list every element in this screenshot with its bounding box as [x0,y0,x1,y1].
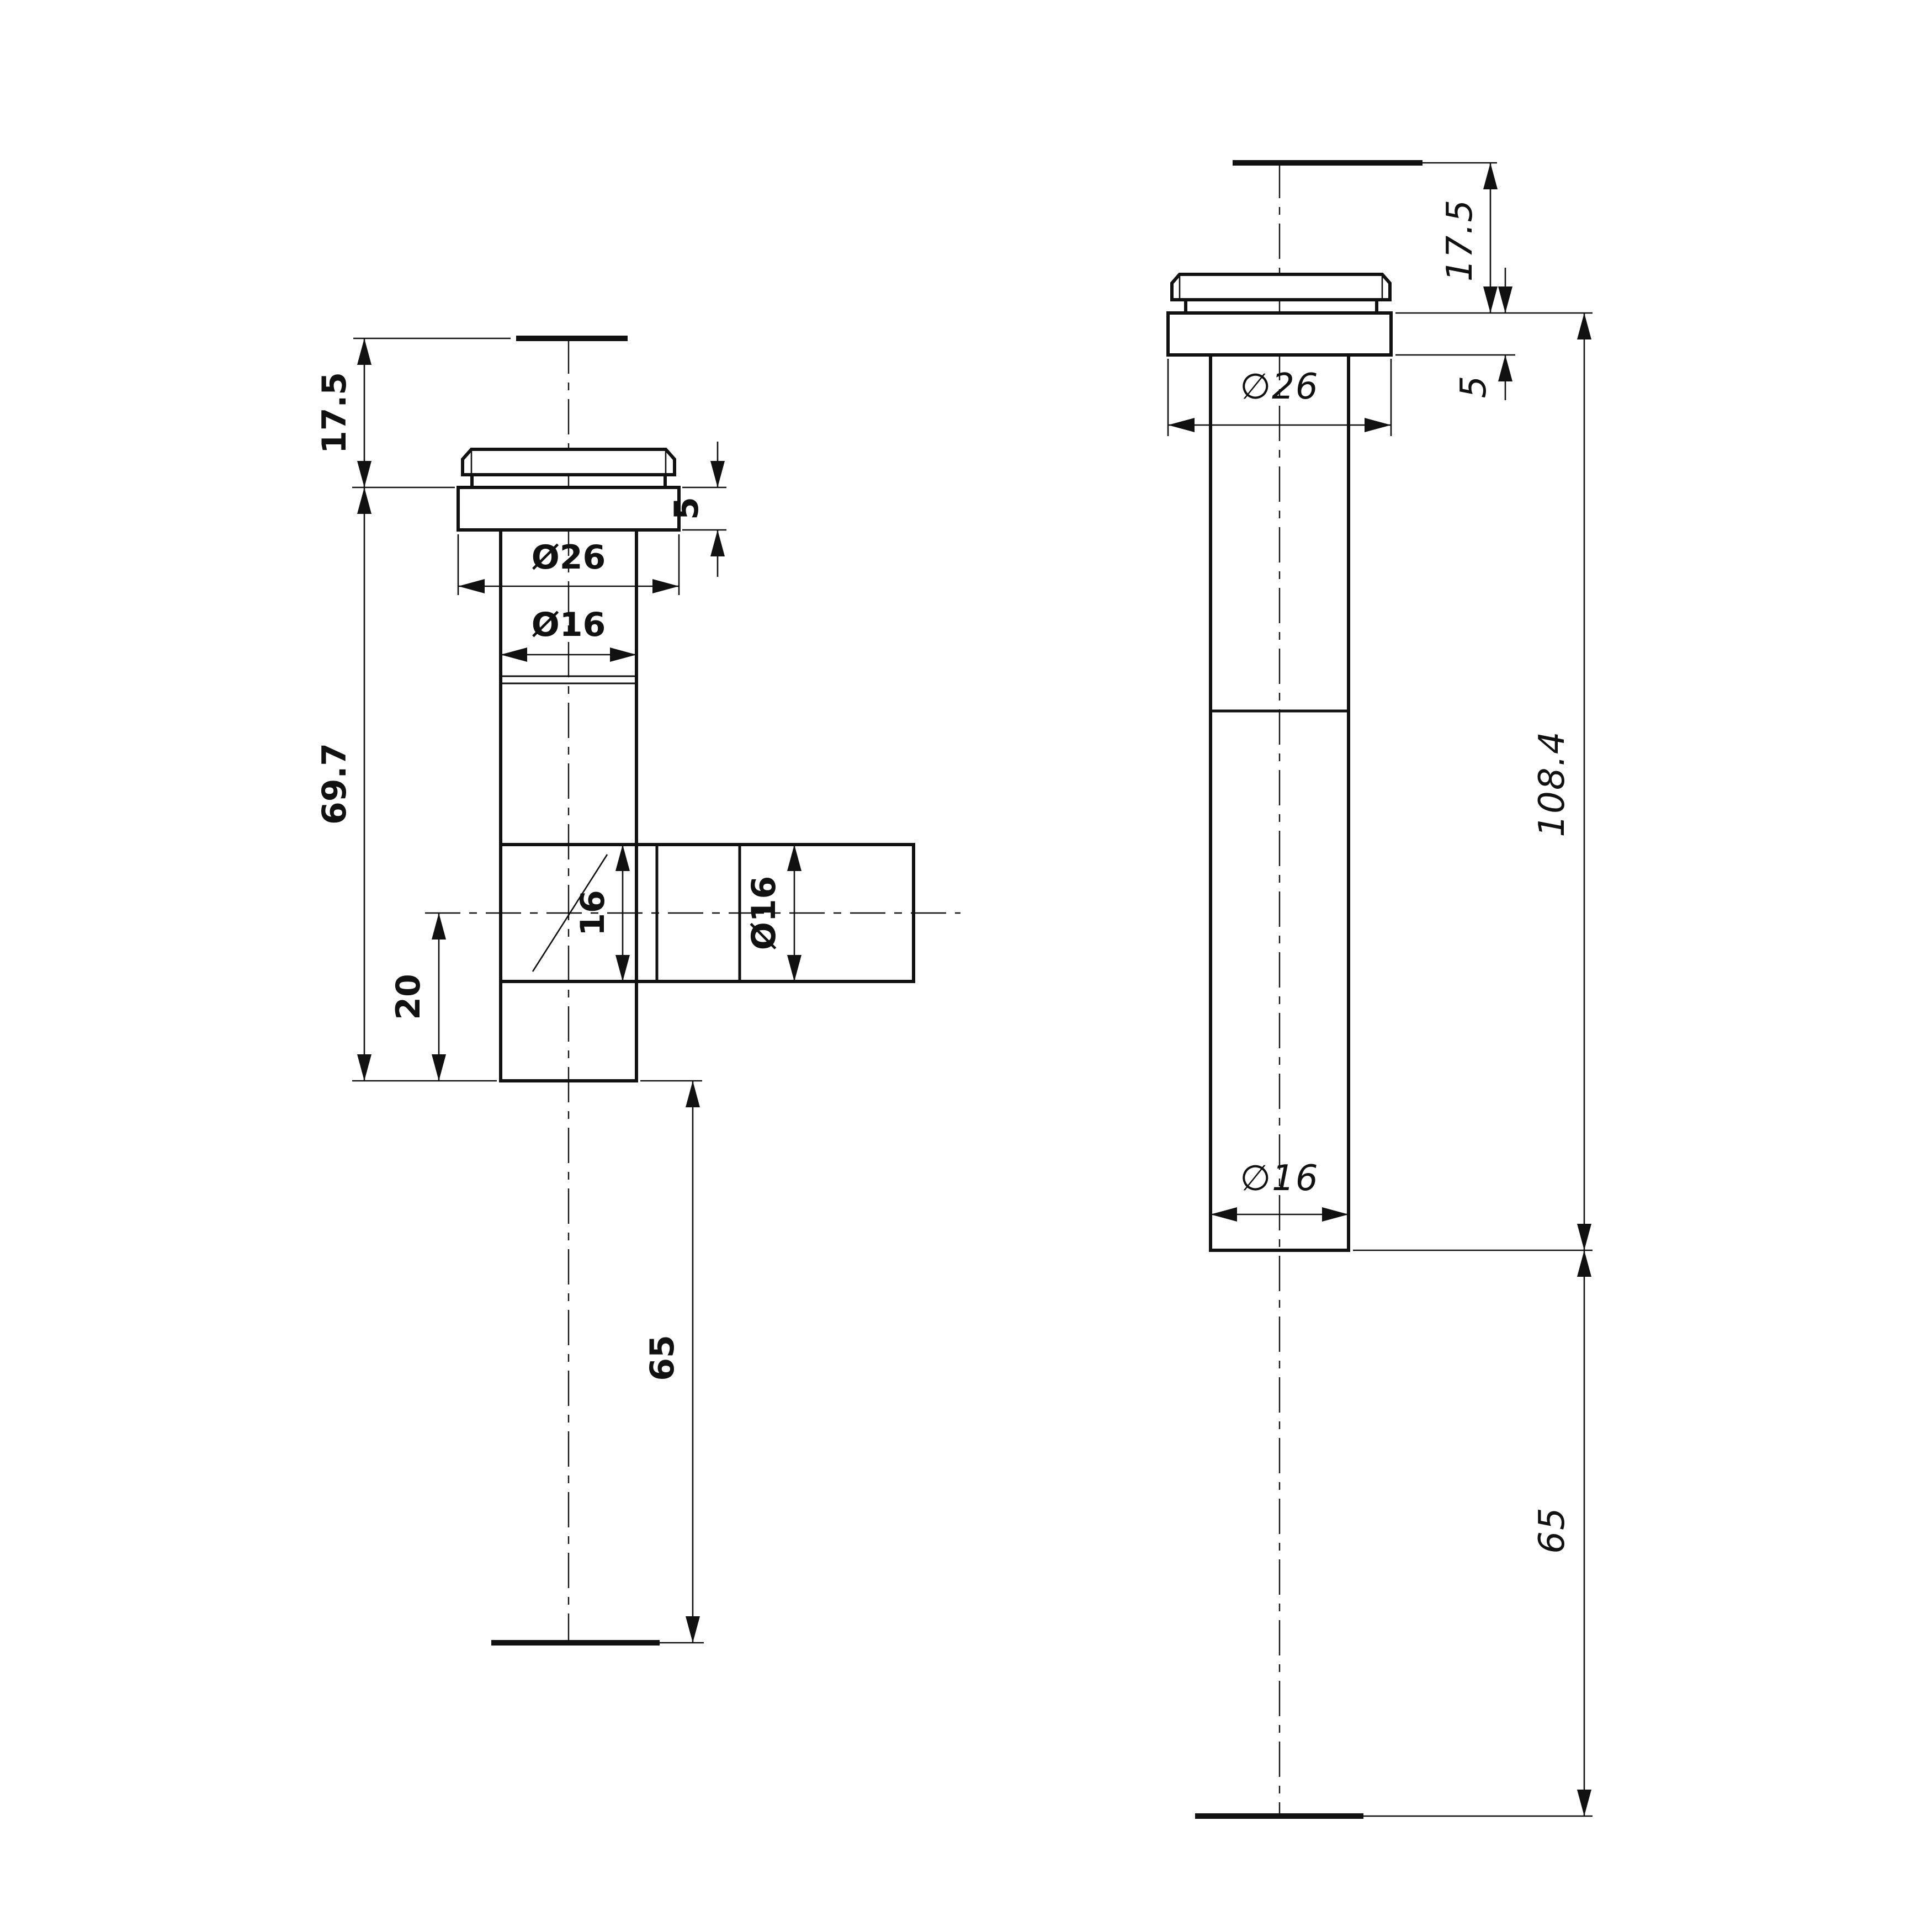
cap-outline [1172,274,1390,300]
technical-drawing: 17.5 69.7 5 Ø26 Ø16 16 [0,0,1932,1932]
front-dim-branch-dia-label: Ø16 [745,876,783,951]
side-dim-glass-gap-label: 65 [1532,1506,1573,1553]
front-dim-branch-bore-label: 16 [574,890,612,936]
arrowhead [357,461,371,487]
arrowhead [686,1081,700,1107]
front-dim-flange-height-label: 5 [667,497,706,520]
side-dim-cap-height-label: 17.5 [1440,199,1480,282]
arrowhead [1577,1790,1591,1816]
arrowhead [432,1054,446,1081]
arrowhead [787,955,802,981]
arrowhead [652,579,679,593]
arrowhead [1577,313,1591,339]
flange-outline [1168,313,1391,355]
front-dim-body-length-label: 69.7 [315,743,354,825]
front-dim-cap-height-label: 17.5 [315,372,354,454]
front-dim-glass-gap-label: 65 [643,1335,682,1381]
arrowhead [1483,286,1498,313]
front-dim-shaft-dia-label: Ø16 [532,606,606,644]
arrowhead [357,487,371,514]
front-dim-flange-dia-label: Ø26 [532,538,606,577]
arrowhead [1168,418,1195,432]
arrowhead [710,530,725,556]
arrowhead [686,1616,700,1643]
arrowhead [1498,355,1512,381]
arrowhead [615,955,630,981]
arrowhead [357,338,371,365]
arrowhead [458,579,485,593]
cap-outline [463,449,675,475]
arrowhead [357,1054,371,1081]
arrowhead [787,845,802,871]
flange-outline [458,487,679,530]
arrowhead [610,647,636,662]
arrowhead [501,647,527,662]
arrowhead [1322,1207,1349,1222]
side-dim-flange-dia-label: ∅26 [1240,367,1319,407]
arrowhead [615,845,630,871]
side-view: 17.5 5 ∅26 ∅16 108.4 65 [1168,163,1593,1816]
side-dim-overall-length-label: 108.4 [1532,730,1573,837]
arrowhead [710,461,725,487]
arrowhead [1211,1207,1237,1222]
arrowhead [1577,1224,1591,1250]
arrowhead [1365,418,1391,432]
side-dim-shaft-dia-label: ∅16 [1240,1158,1319,1199]
arrowhead [1577,1250,1591,1277]
front-dim-branch-offset-label: 20 [389,974,428,1020]
arrowhead [1483,163,1498,189]
arrowhead [1498,286,1512,313]
arrowhead [432,913,446,940]
side-dim-flange-height-label: 5 [1453,375,1494,399]
front-view: 17.5 69.7 5 Ø26 Ø16 16 [315,338,960,1643]
